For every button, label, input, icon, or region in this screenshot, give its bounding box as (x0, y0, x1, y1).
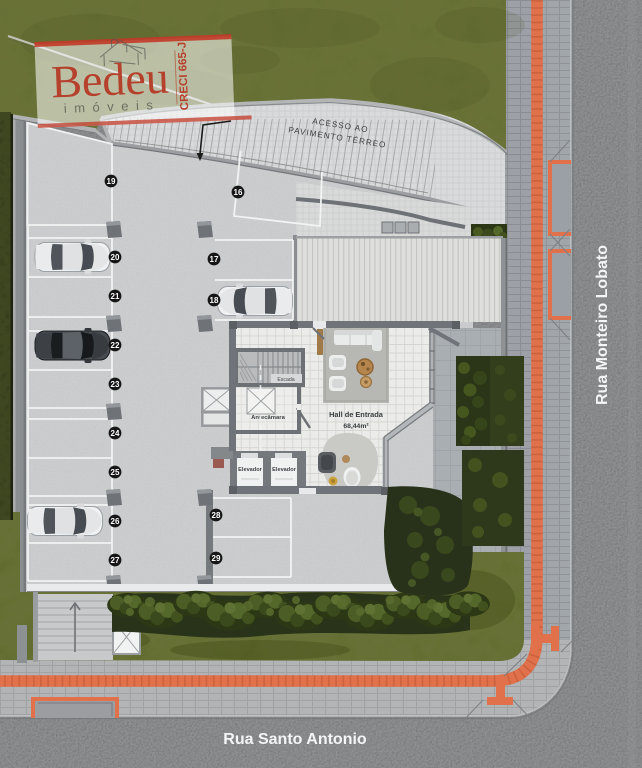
svg-text:Elevador: Elevador (238, 467, 262, 473)
svg-text:27: 27 (111, 556, 120, 565)
svg-text:Rua Monteiro Lobato: Rua Monteiro Lobato (594, 245, 611, 405)
svg-text:22: 22 (111, 341, 120, 350)
svg-text:Hall de Entrada: Hall de Entrada (329, 410, 384, 419)
svg-text:Rua Santo Antonio: Rua Santo Antonio (223, 731, 367, 748)
svg-text:23: 23 (111, 380, 120, 389)
svg-text:16: 16 (234, 188, 243, 197)
svg-text:68,44m²: 68,44m² (343, 423, 369, 430)
svg-text:29: 29 (212, 554, 221, 563)
svg-text:Antecâmara: Antecâmara (251, 415, 285, 421)
svg-text:Escada: Escada (277, 377, 294, 383)
svg-text:17: 17 (210, 255, 219, 264)
svg-text:20: 20 (111, 253, 120, 262)
svg-text:Elevador: Elevador (272, 467, 296, 473)
svg-text:19: 19 (107, 177, 116, 186)
svg-text:28: 28 (212, 511, 221, 520)
svg-text:26: 26 (111, 517, 120, 526)
svg-text:18: 18 (210, 296, 219, 305)
svg-text:21: 21 (111, 292, 120, 301)
svg-text:25: 25 (111, 468, 120, 477)
svg-text:24: 24 (111, 429, 120, 438)
